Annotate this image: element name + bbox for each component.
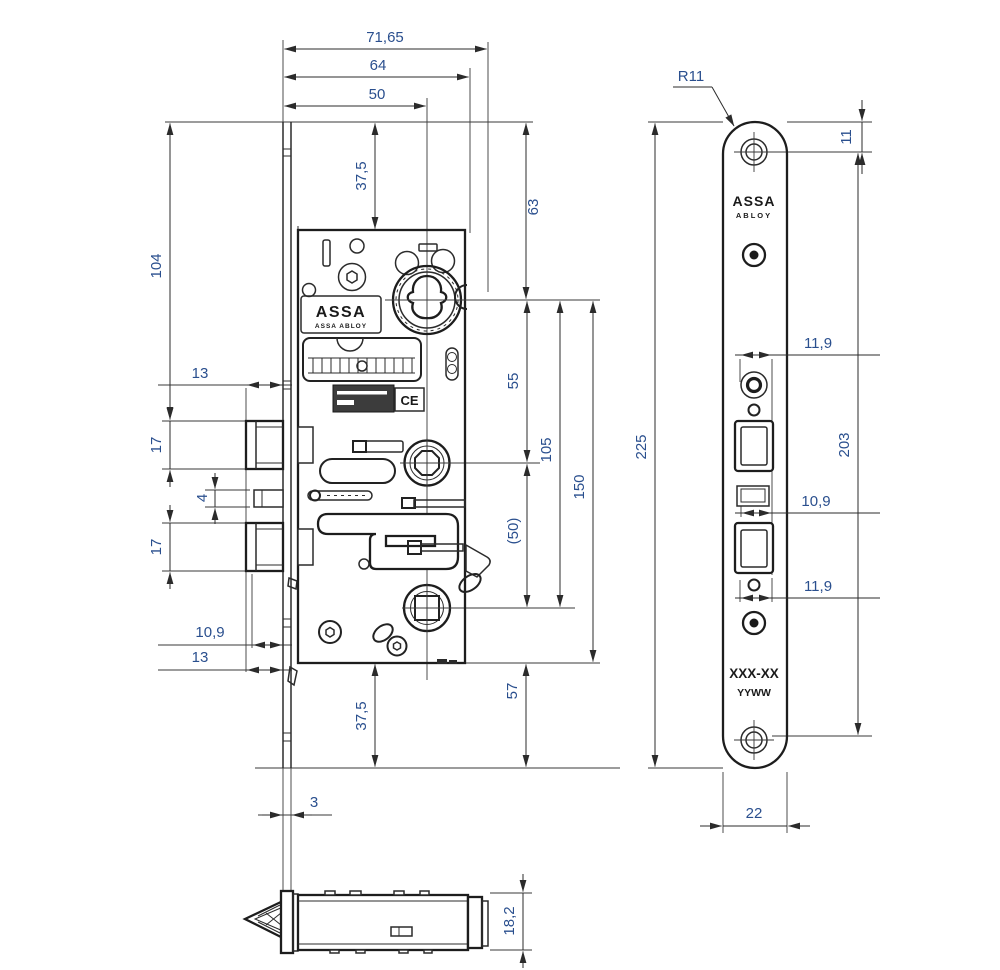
dim-backset: 50 xyxy=(369,86,386,103)
handle-hub xyxy=(400,438,452,488)
dim-latch-height: 17 xyxy=(148,437,165,454)
case-section xyxy=(298,895,468,950)
plate-tab xyxy=(288,578,297,589)
case-logo: ASSA ASSA ABLOY xyxy=(301,296,381,333)
dim-bolt-proj: 10,9 xyxy=(195,624,224,641)
case-logo-assa: ASSA xyxy=(316,304,366,321)
faceplate-logo-abloy: ABLOY xyxy=(736,211,772,220)
faceplate-logo-assa: ASSA xyxy=(733,193,776,209)
faceplate-screw-mid xyxy=(741,372,767,398)
dim-screw-span: 203 xyxy=(836,432,853,457)
faceplate-marking-model: XXX-XX xyxy=(729,666,779,681)
deadbolt-hub xyxy=(402,583,452,633)
faceplate-section xyxy=(281,891,293,953)
deadlock-bolt xyxy=(246,523,283,571)
dim-plate-width: 22 xyxy=(746,805,763,822)
faceplate-screw-top xyxy=(734,132,774,172)
dim-width-case: 64 xyxy=(370,57,387,74)
dim-cylinder-top: 63 xyxy=(525,199,542,216)
dim-plate-height: 225 xyxy=(633,434,650,459)
case-screw xyxy=(339,264,366,291)
faceplate-view: ASSA ABLOY XXX-XX YYWW R11 xyxy=(633,68,880,833)
dim-aux-height: 4 xyxy=(194,494,211,502)
front-view: ASSA ASSA ABLOY CE xyxy=(148,29,620,898)
case-screw xyxy=(319,621,341,643)
dim-cyl-to-case-bottom: 150 xyxy=(571,474,588,499)
dim-bolt-offset: 11,9 xyxy=(804,578,832,595)
deadbolt-opening xyxy=(735,523,773,573)
mechanism-comb xyxy=(303,338,421,381)
plate-tab xyxy=(288,667,297,685)
dim-screw-top: 11 xyxy=(838,129,855,145)
dim-latch-proj-top: 13 xyxy=(192,365,209,382)
faceplate-marking-date: YYWW xyxy=(737,687,771,699)
ce-mark-text: CE xyxy=(400,393,418,408)
aux-pin xyxy=(254,490,283,507)
ce-mark: CE xyxy=(395,388,424,411)
dim-width-total: 71,65 xyxy=(366,29,404,46)
dim-hub-to-bolt-ref: (50) xyxy=(505,518,522,545)
bottom-view: 18,2 xyxy=(245,874,532,968)
aux-opening xyxy=(737,486,769,506)
latch-bolt xyxy=(246,421,283,469)
dim-top-offset: 37,5 xyxy=(353,161,370,190)
latch-opening xyxy=(735,421,773,471)
slider-plate xyxy=(333,385,394,412)
dim-plate-thickness: 3 xyxy=(310,794,318,811)
case-flag xyxy=(466,545,490,577)
dim-case-bottom: 57 xyxy=(504,683,521,700)
lock-technical-drawing: ASSA ASSA ABLOY CE xyxy=(0,0,1000,970)
dim-left-height: 104 xyxy=(148,253,165,278)
dim-bolt-height: 17 xyxy=(148,539,165,556)
dim-aux-offset: 10,9 xyxy=(801,493,830,510)
technical-drawing-page: ASSA ASSA ABLOY CE xyxy=(0,0,1000,970)
case-logo-assa-abloy: ASSA ABLOY xyxy=(315,323,367,330)
dim-corner-radius: R11 xyxy=(678,68,704,85)
cylinder-hole xyxy=(385,266,470,334)
dim-cyl-to-hub: 55 xyxy=(505,373,522,390)
spring-bar xyxy=(308,491,372,501)
dim-latch-offset-top: 11,9 xyxy=(804,335,832,352)
dim-bottom-offset: 37,5 xyxy=(353,701,370,730)
dim-latch-proj-bottom: 13 xyxy=(192,649,209,666)
dim-case-thickness: 18,2 xyxy=(501,906,518,935)
dim-cyl-to-bolt: 105 xyxy=(538,437,555,462)
s-slot xyxy=(318,514,463,569)
faceplate-screw-bottom xyxy=(734,720,774,760)
